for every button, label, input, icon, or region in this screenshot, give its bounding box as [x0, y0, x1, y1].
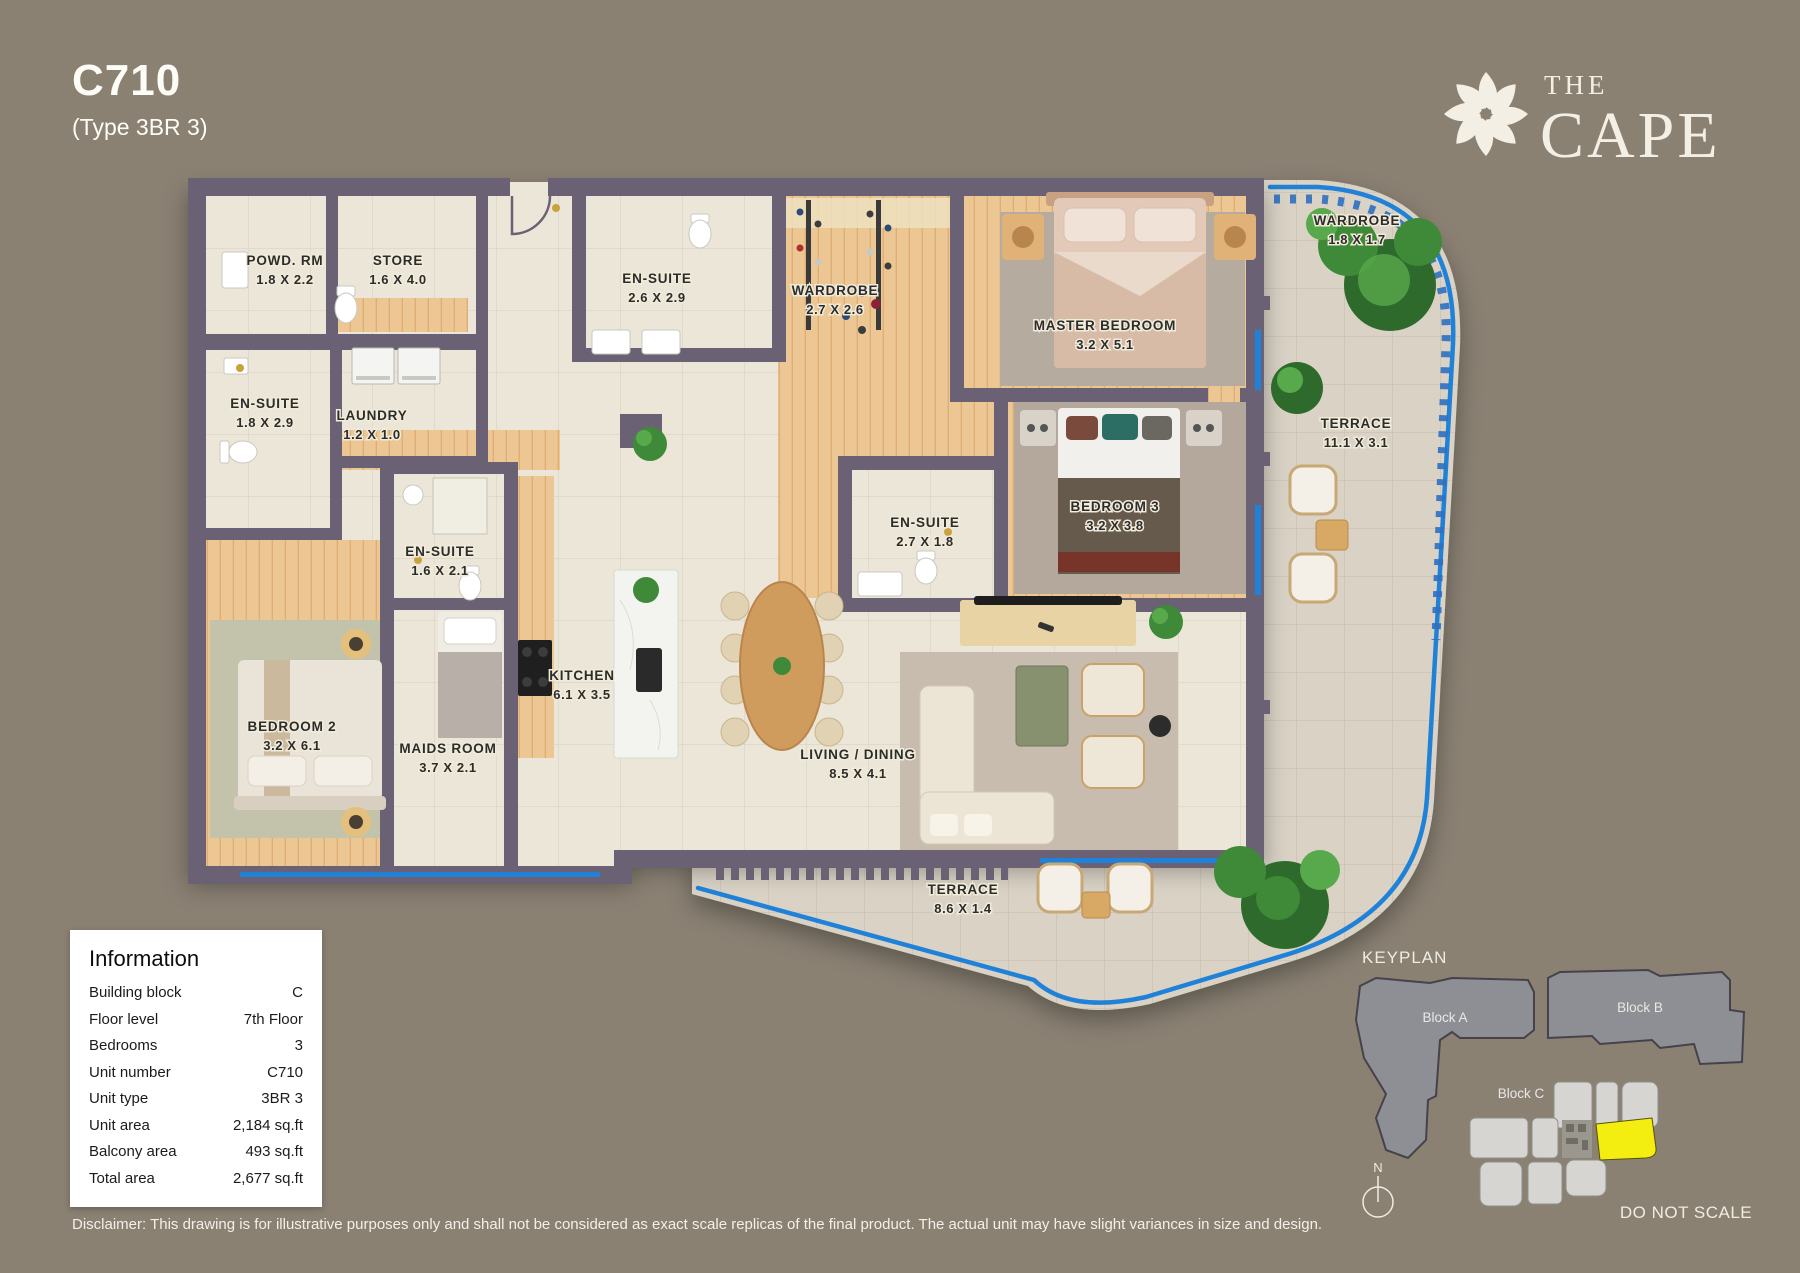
svg-text:8.6 X 1.4: 8.6 X 1.4	[934, 901, 992, 916]
maids-bed	[438, 612, 502, 738]
tv-console	[960, 596, 1136, 646]
svg-text:2.6 X 2.9: 2.6 X 2.9	[628, 290, 685, 305]
info-row-floor-level: Floor level7th Floor	[89, 1011, 303, 1028]
coffee-table	[1016, 666, 1068, 746]
svg-text:1.2 X 1.0: 1.2 X 1.0	[343, 427, 400, 442]
svg-text:EN-SUITE: EN-SUITE	[622, 271, 691, 286]
compass-north-label: N	[1373, 1160, 1382, 1175]
stove	[518, 640, 552, 696]
svg-text:BEDROOM 3: BEDROOM 3	[1071, 499, 1160, 514]
svg-text:LAUNDRY: LAUNDRY	[336, 408, 407, 423]
kitchen-island	[614, 570, 678, 758]
keyplan-title: KEYPLAN	[1362, 948, 1447, 967]
info-row-total-area: Total area2,677 sq.ft	[89, 1170, 303, 1187]
svg-text:1.6 X 2.1: 1.6 X 2.1	[411, 563, 468, 578]
svg-text:1.8 X 2.2: 1.8 X 2.2	[256, 272, 313, 287]
svg-text:3.2 X 3.8: 3.2 X 3.8	[1086, 518, 1143, 533]
svg-text:WARDROBE: WARDROBE	[792, 283, 879, 298]
keyplan-block-b-label: Block B	[1617, 1000, 1663, 1015]
svg-text:KITCHEN: KITCHEN	[549, 668, 615, 683]
keyplan-block-a-label: Block A	[1422, 1010, 1467, 1025]
svg-text:1.8 X 1.7: 1.8 X 1.7	[1328, 232, 1385, 247]
plant-terrace-middle	[1271, 362, 1323, 414]
svg-text:8.5 X 4.1: 8.5 X 4.1	[829, 766, 886, 781]
compass-icon	[1363, 1176, 1393, 1217]
svg-text:TERRACE: TERRACE	[928, 882, 999, 897]
svg-text:STORE: STORE	[373, 253, 423, 268]
svg-text:TERRACE: TERRACE	[1321, 416, 1392, 431]
info-row-bedrooms: Bedrooms3	[89, 1037, 303, 1054]
svg-text:2.7 X 1.8: 2.7 X 1.8	[896, 534, 953, 549]
svg-text:1.8 X 2.9: 1.8 X 2.9	[236, 415, 293, 430]
keyplan-core	[1562, 1120, 1592, 1158]
info-row-unit-type: Unit type3BR 3	[89, 1090, 303, 1107]
svg-text:1.6 X 4.0: 1.6 X 4.0	[369, 272, 426, 287]
do-not-scale-label: DO NOT SCALE	[1620, 1203, 1752, 1222]
svg-text:3.2 X 5.1: 3.2 X 5.1	[1076, 337, 1133, 352]
keyplan-block-c-label: Block C	[1498, 1086, 1545, 1101]
keyplan: KEYPLAN Block A Block B Block C	[1356, 948, 1752, 1222]
svg-text:3.2 X 6.1: 3.2 X 6.1	[263, 738, 320, 753]
keyplan-block-b	[1548, 970, 1744, 1064]
svg-text:POWD. RM: POWD. RM	[247, 253, 324, 268]
svg-text:MASTER BEDROOM: MASTER BEDROOM	[1034, 318, 1176, 333]
info-row-unit-number: Unit numberC710	[89, 1064, 303, 1081]
info-row-balcony-area: Balcony area493 sq.ft	[89, 1143, 303, 1160]
svg-text:11.1 X 3.1: 11.1 X 3.1	[1324, 435, 1389, 450]
svg-text:MAIDS ROOM: MAIDS ROOM	[399, 741, 496, 756]
svg-text:WARDROBE: WARDROBE	[1314, 213, 1401, 228]
svg-text:EN-SUITE: EN-SUITE	[890, 515, 959, 530]
svg-text:EN-SUITE: EN-SUITE	[405, 544, 474, 559]
keyplan-highlight-unit	[1596, 1118, 1656, 1160]
page: C710 (Type 3BR 3) THE CAPE	[0, 0, 1800, 1273]
svg-text:2.7 X 2.6: 2.7 X 2.6	[806, 302, 863, 317]
information-title: Information	[89, 946, 303, 972]
dining-table	[721, 582, 843, 750]
svg-text:EN-SUITE: EN-SUITE	[230, 396, 299, 411]
plant-entry	[633, 427, 667, 461]
svg-text:3.7 X 2.1: 3.7 X 2.1	[419, 760, 476, 775]
svg-text:LIVING / DINING: LIVING / DINING	[800, 747, 916, 762]
disclaimer-text: Disclaimer: This drawing is for illustra…	[72, 1216, 1332, 1233]
info-row-unit-area: Unit area2,184 sq.ft	[89, 1117, 303, 1134]
svg-text:BEDROOM 2: BEDROOM 2	[248, 719, 337, 734]
information-panel: Information Building blockC Floor level7…	[70, 930, 322, 1207]
svg-text:6.1 X 3.5: 6.1 X 3.5	[553, 687, 610, 702]
info-row-building-block: Building blockC	[89, 984, 303, 1001]
plant-console	[1149, 605, 1183, 639]
